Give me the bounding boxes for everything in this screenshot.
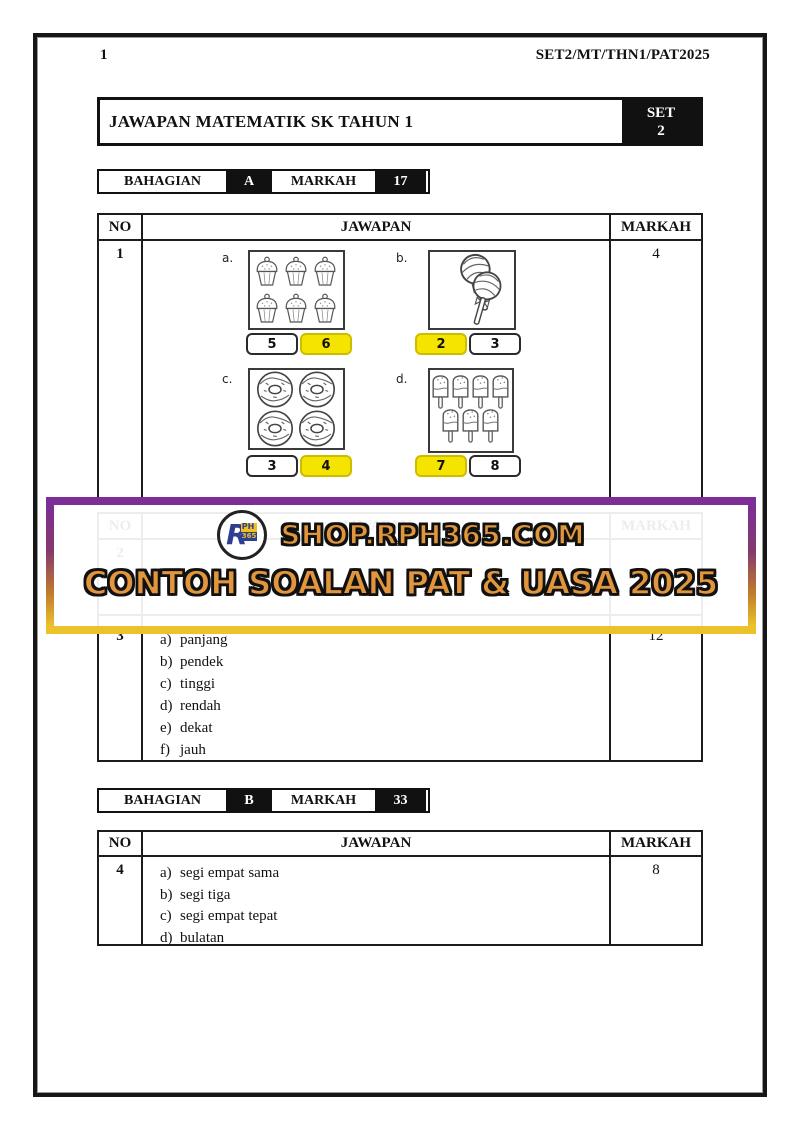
column-jawapan: JAWAPAN a)segi empat sama b)segi tiga c)… <box>143 832 609 944</box>
section-a-markah-value: 17 <box>375 171 426 192</box>
banner-shop-url: SHOP.RPH365.COM <box>281 520 586 551</box>
answers-table-3: NO 4 JAWAPAN a)segi empat sama b)segi ti… <box>97 830 703 946</box>
section-b-label: BAHAGIAN <box>99 790 226 811</box>
list-item: b)segi tiga <box>160 885 609 907</box>
logo-365: 365 <box>241 532 258 540</box>
document-code: SET2/MT/THN1/PAT2025 <box>536 47 710 64</box>
column-no: NO 4 <box>99 832 143 944</box>
q1b-picture-box <box>428 250 516 330</box>
column-markah: MARKAH 8 <box>609 832 701 944</box>
header-jawapan: JAWAPAN <box>143 832 609 857</box>
lollipop-icon <box>430 252 514 328</box>
list-item: d)rendah <box>160 695 609 717</box>
cupcake-icon <box>250 252 343 328</box>
section-b-bar: BAHAGIAN B MARKAH 33 <box>97 788 430 813</box>
promo-banner: R PH 365 SHOP.RPH365.COM CONTOH SOALAN P… <box>46 497 756 634</box>
q1c-option-2-selected: 4 <box>300 455 352 477</box>
q1a-label: a. <box>222 251 233 265</box>
q1c-options: 3 4 <box>246 455 352 477</box>
q1b-option-2: 3 <box>469 333 521 355</box>
header-jawapan: JAWAPAN <box>143 215 609 241</box>
q1c-label: c. <box>222 372 232 386</box>
q1d-picture-box <box>428 368 514 453</box>
section-a-markah-label: MARKAH <box>272 171 375 192</box>
section-b-value: B <box>226 790 272 811</box>
answers-table-1: NO 1 JAWAPAN a. 5 6 b. <box>97 213 703 500</box>
logo-ph: PH <box>241 523 258 532</box>
q1b-options: 2 3 <box>415 333 521 355</box>
list-item: d)bulatan <box>160 928 609 950</box>
q1-markah: 4 <box>611 241 701 263</box>
title-bar: JAWAPAN MATEMATIK SK TAHUN 1 SET 2 <box>97 97 703 146</box>
list-item: e)dekat <box>160 717 609 739</box>
q1c-option-1: 3 <box>246 455 298 477</box>
rph365-logo-icon: R PH 365 <box>217 510 267 560</box>
q1c-picture-box <box>248 368 345 450</box>
q1a-picture-box <box>248 250 345 330</box>
q1b-option-1-selected: 2 <box>415 333 467 355</box>
list-item: f)jauh <box>160 739 609 761</box>
q1-answer-area: a. 5 6 b. <box>143 241 609 498</box>
column-markah: MARKAH 4 <box>609 215 701 498</box>
section-a-label: BAHAGIAN <box>99 171 226 192</box>
donut-icon <box>250 370 343 448</box>
header-markah: MARKAH <box>611 215 701 241</box>
q3-answer-list: a)panjang b)pendek c)tinggi d)rendah e)d… <box>143 616 609 761</box>
q4-answer-list: a)segi empat sama b)segi tiga c)segi emp… <box>143 857 609 949</box>
section-a-bar: BAHAGIAN A MARKAH 17 <box>97 169 430 194</box>
page-title: JAWAPAN MATEMATIK SK TAHUN 1 <box>100 100 622 143</box>
set-chip: SET 2 <box>622 100 700 143</box>
set-chip-label: SET <box>647 104 675 122</box>
list-item: b)pendek <box>160 651 609 673</box>
q1a-options: 5 6 <box>246 333 352 355</box>
set-chip-number: 2 <box>657 122 665 140</box>
q1d-option-2: 8 <box>469 455 521 477</box>
q1d-options: 7 8 <box>415 455 521 477</box>
section-b-markah-value: 33 <box>375 790 426 811</box>
column-jawapan: JAWAPAN a. 5 6 b. <box>143 215 609 498</box>
q1a-option-1: 5 <box>246 333 298 355</box>
header-markah: MARKAH <box>611 832 701 857</box>
q1-number: 1 <box>99 241 141 263</box>
q1a-option-2-selected: 6 <box>300 333 352 355</box>
header-no: NO <box>99 215 141 241</box>
q4-markah: 8 <box>611 857 701 879</box>
q4-number: 4 <box>99 857 141 879</box>
list-item: c)tinggi <box>160 673 609 695</box>
q1d-label: d. <box>396 372 407 386</box>
section-b-markah-label: MARKAH <box>272 790 375 811</box>
list-item: c)segi empat tepat <box>160 906 609 928</box>
page-number: 1 <box>100 47 108 64</box>
q1d-option-1-selected: 7 <box>415 455 467 477</box>
list-item: a)segi empat sama <box>160 863 609 885</box>
column-no: NO 1 <box>99 215 143 498</box>
ice-pop-icon <box>430 370 512 451</box>
banner-tagline: CONTOH SOALAN PAT & UASA 2025 <box>84 564 718 602</box>
header-no: NO <box>99 832 141 857</box>
banner-top-row: R PH 365 SHOP.RPH365.COM <box>217 510 586 560</box>
section-a-value: A <box>226 171 272 192</box>
q1b-label: b. <box>396 251 407 265</box>
